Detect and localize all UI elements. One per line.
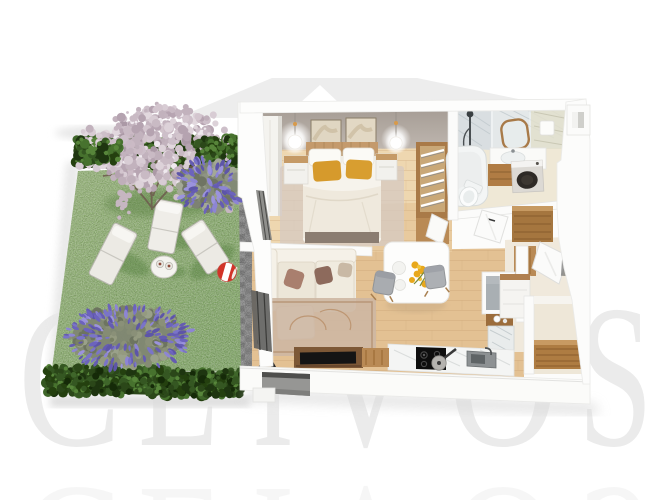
svg-text:I: I [252,445,294,500]
svg-text:C: C [18,444,121,500]
svg-text:V: V [310,444,420,500]
svg-text:S: S [578,444,653,500]
svg-text:L: L [138,444,220,500]
svg-text:O: O [448,444,558,500]
